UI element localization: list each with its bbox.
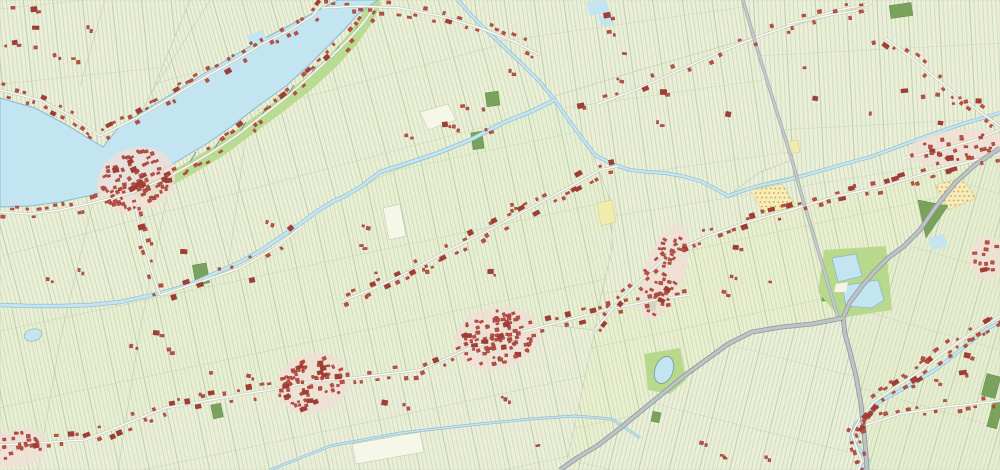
map-viewport[interactable] [0, 0, 1000, 470]
building [195, 404, 201, 409]
building [804, 207, 808, 211]
building [617, 78, 620, 81]
building [869, 112, 872, 116]
building [803, 67, 806, 70]
building [94, 193, 98, 197]
building [906, 407, 911, 411]
building [152, 197, 156, 200]
building [245, 384, 252, 390]
building [656, 120, 658, 123]
building [360, 380, 363, 383]
building [353, 380, 356, 384]
building [768, 459, 771, 462]
building [740, 248, 743, 251]
building [161, 185, 164, 189]
building [817, 9, 822, 13]
building [662, 253, 666, 256]
building [901, 88, 908, 93]
building [81, 210, 84, 214]
building [346, 373, 350, 377]
building [491, 337, 494, 341]
building [78, 268, 81, 272]
building [318, 387, 322, 391]
building [938, 383, 942, 386]
building [15, 206, 19, 209]
building [157, 167, 161, 170]
building [326, 365, 330, 367]
building [964, 352, 971, 358]
building [223, 391, 227, 395]
building [15, 88, 19, 92]
building [983, 147, 987, 151]
forest-parcel [651, 411, 661, 422]
building [555, 317, 558, 320]
building [952, 102, 955, 104]
building [733, 245, 739, 250]
building [166, 185, 169, 187]
building [668, 262, 672, 265]
building [484, 128, 487, 131]
building [682, 244, 686, 248]
building [397, 14, 401, 16]
building [471, 343, 478, 347]
building [298, 403, 301, 406]
building [662, 278, 665, 281]
building [965, 153, 968, 156]
building [82, 272, 85, 275]
building [237, 389, 240, 392]
building [90, 195, 95, 199]
building [675, 293, 680, 296]
building [363, 247, 368, 250]
building [387, 376, 390, 379]
building [307, 398, 314, 402]
building [483, 352, 487, 355]
building [317, 364, 320, 367]
building [117, 202, 121, 206]
building [979, 136, 983, 140]
building [662, 265, 666, 268]
building [47, 444, 51, 447]
building [199, 393, 202, 396]
forest-parcel [485, 91, 500, 107]
building [607, 30, 612, 34]
building [292, 370, 297, 374]
building [139, 211, 143, 216]
building [991, 268, 995, 271]
building [68, 431, 74, 436]
building [359, 244, 363, 246]
building [996, 159, 1000, 163]
building [966, 407, 971, 411]
building [432, 20, 436, 23]
building [177, 398, 180, 401]
building [833, 9, 838, 13]
building [936, 162, 939, 166]
building [470, 339, 473, 343]
building [352, 10, 356, 14]
building [509, 69, 512, 73]
building [249, 277, 255, 283]
building [492, 362, 496, 366]
building [564, 323, 568, 327]
building [36, 10, 41, 13]
building [495, 328, 499, 332]
building [208, 390, 215, 395]
building [769, 281, 772, 283]
building [291, 402, 294, 404]
building [311, 375, 314, 379]
building [414, 376, 419, 380]
building [37, 207, 42, 210]
building [923, 413, 926, 415]
building [448, 125, 451, 128]
building [501, 345, 507, 350]
building [801, 14, 806, 18]
building [524, 343, 528, 347]
building [502, 360, 507, 363]
building [735, 277, 738, 280]
building [12, 40, 18, 45]
building [2, 445, 6, 449]
building [964, 100, 968, 104]
building [486, 325, 489, 329]
building [984, 247, 989, 251]
building [507, 333, 512, 337]
building [514, 207, 517, 210]
building [532, 334, 536, 337]
building [442, 122, 448, 128]
building [937, 153, 941, 156]
building [413, 14, 417, 17]
building [667, 280, 672, 284]
building [995, 245, 999, 248]
building [603, 12, 611, 18]
building [425, 270, 429, 274]
building [15, 432, 18, 435]
building [465, 352, 468, 355]
building [466, 107, 470, 110]
building [980, 148, 984, 152]
building [666, 303, 670, 307]
building [665, 93, 669, 96]
building [119, 175, 122, 178]
building [297, 400, 300, 403]
building [53, 204, 57, 207]
building [393, 366, 398, 369]
building [827, 199, 831, 203]
building [285, 375, 288, 378]
building [457, 129, 460, 133]
building [379, 12, 384, 16]
building [180, 249, 187, 254]
building [958, 409, 962, 413]
building [251, 378, 254, 381]
building [508, 325, 511, 327]
building [730, 275, 734, 278]
building [37, 441, 40, 445]
building [970, 357, 974, 361]
building [504, 398, 507, 400]
building [647, 294, 652, 298]
building [724, 457, 727, 459]
building [989, 147, 992, 149]
building [423, 6, 428, 10]
building [704, 443, 707, 447]
building [53, 53, 57, 57]
building [39, 448, 42, 451]
building [624, 298, 628, 301]
building [286, 389, 289, 392]
building [167, 348, 171, 352]
building [387, 1, 391, 4]
building [403, 403, 406, 406]
building [45, 207, 48, 210]
building [598, 306, 601, 309]
building [150, 260, 153, 263]
building [791, 26, 794, 30]
building [501, 336, 505, 339]
building [230, 400, 233, 403]
building [973, 260, 976, 264]
building [33, 437, 36, 441]
building [494, 274, 496, 276]
building [530, 338, 532, 340]
building [32, 215, 36, 218]
building [87, 25, 90, 29]
building [209, 371, 212, 374]
building [3, 438, 7, 441]
building [496, 310, 499, 313]
building [46, 277, 49, 281]
building [345, 3, 349, 5]
building [865, 192, 868, 196]
building [367, 371, 371, 374]
building [613, 33, 616, 36]
building [246, 374, 251, 378]
building [935, 93, 939, 97]
building [699, 441, 704, 445]
building [516, 316, 520, 320]
building [982, 253, 985, 256]
building [160, 334, 165, 337]
building [129, 344, 133, 348]
building [622, 52, 627, 55]
building [481, 340, 488, 344]
building [501, 396, 503, 398]
building [959, 96, 962, 99]
building [812, 96, 818, 101]
building [645, 304, 650, 308]
building [930, 152, 934, 155]
building [336, 384, 339, 387]
building [943, 399, 946, 402]
building [960, 135, 964, 137]
building [285, 397, 289, 400]
building [58, 57, 61, 60]
building [513, 355, 518, 359]
building [61, 202, 64, 206]
building [476, 331, 481, 335]
building [254, 398, 257, 401]
building [407, 407, 410, 411]
building [32, 26, 39, 30]
building [965, 373, 968, 377]
building [184, 398, 190, 404]
building [90, 29, 93, 33]
building [870, 181, 875, 186]
building [325, 375, 329, 379]
building [4, 45, 7, 47]
building [358, 8, 363, 11]
building [916, 406, 919, 408]
building [404, 376, 408, 380]
building [26, 208, 29, 211]
building [410, 137, 413, 139]
building [985, 240, 990, 244]
map-canvas[interactable] [0, 0, 1000, 470]
building [619, 80, 624, 84]
building [166, 174, 169, 177]
building [940, 138, 944, 142]
building [529, 340, 532, 343]
building [925, 360, 929, 364]
building [76, 60, 80, 64]
building [565, 311, 571, 317]
building [282, 384, 289, 388]
building [499, 358, 503, 362]
building [154, 194, 159, 197]
building [964, 145, 968, 148]
building [32, 100, 35, 103]
building [765, 456, 768, 459]
forest-parcel [889, 3, 913, 19]
building [660, 124, 664, 126]
building [991, 142, 995, 146]
building [22, 91, 26, 94]
building [872, 41, 876, 45]
building [938, 121, 944, 125]
building [853, 184, 856, 188]
building [972, 252, 977, 255]
building [510, 203, 513, 207]
building [76, 433, 79, 436]
building [153, 330, 160, 335]
building [324, 0, 328, 3]
building [636, 297, 639, 300]
building [368, 9, 372, 12]
building [928, 145, 932, 149]
building [682, 289, 687, 293]
building [647, 309, 650, 312]
building [132, 200, 136, 203]
building [4, 457, 7, 460]
building [278, 394, 281, 397]
building [165, 178, 173, 183]
building [331, 3, 335, 5]
building [12, 437, 15, 440]
building [17, 44, 22, 47]
building [113, 186, 117, 189]
building [911, 385, 915, 388]
building [405, 134, 408, 137]
building [69, 203, 73, 207]
building [146, 238, 151, 242]
building [488, 269, 494, 274]
building [294, 373, 297, 376]
building [340, 380, 345, 385]
building [159, 284, 164, 288]
building [475, 320, 479, 323]
building [1, 215, 6, 219]
building [71, 57, 75, 59]
building [169, 401, 175, 406]
building [260, 383, 265, 386]
building [482, 107, 485, 111]
building [512, 73, 516, 76]
building [2, 82, 6, 85]
building [9, 452, 13, 456]
building [726, 294, 730, 297]
building [106, 169, 110, 173]
building [720, 454, 723, 456]
building [921, 356, 926, 361]
building [845, 3, 848, 6]
building [137, 207, 140, 210]
building [34, 46, 38, 49]
building [505, 354, 508, 357]
building [375, 272, 378, 274]
building [376, 378, 380, 381]
building [725, 111, 731, 117]
building [976, 99, 982, 104]
building [381, 400, 388, 406]
building [979, 262, 982, 266]
building [859, 4, 863, 7]
building [506, 314, 509, 317]
building [124, 205, 127, 209]
building [472, 348, 474, 351]
building [362, 225, 365, 228]
building [51, 280, 54, 283]
building [315, 377, 319, 380]
building [150, 242, 153, 245]
building [599, 165, 602, 168]
building [974, 406, 977, 408]
building [452, 125, 456, 129]
building [934, 410, 938, 413]
building [611, 17, 615, 21]
building [859, 10, 864, 14]
building [10, 208, 14, 210]
building [987, 149, 991, 153]
building [508, 401, 510, 404]
building [280, 377, 283, 380]
building [460, 104, 465, 107]
building [921, 95, 925, 99]
building [658, 281, 663, 285]
building [422, 268, 425, 271]
building [960, 138, 964, 140]
building [279, 389, 283, 393]
building [54, 434, 58, 437]
building [123, 185, 127, 189]
building [946, 155, 954, 161]
building [78, 211, 82, 214]
building [301, 381, 304, 384]
building [11, 6, 15, 9]
building [170, 351, 175, 355]
